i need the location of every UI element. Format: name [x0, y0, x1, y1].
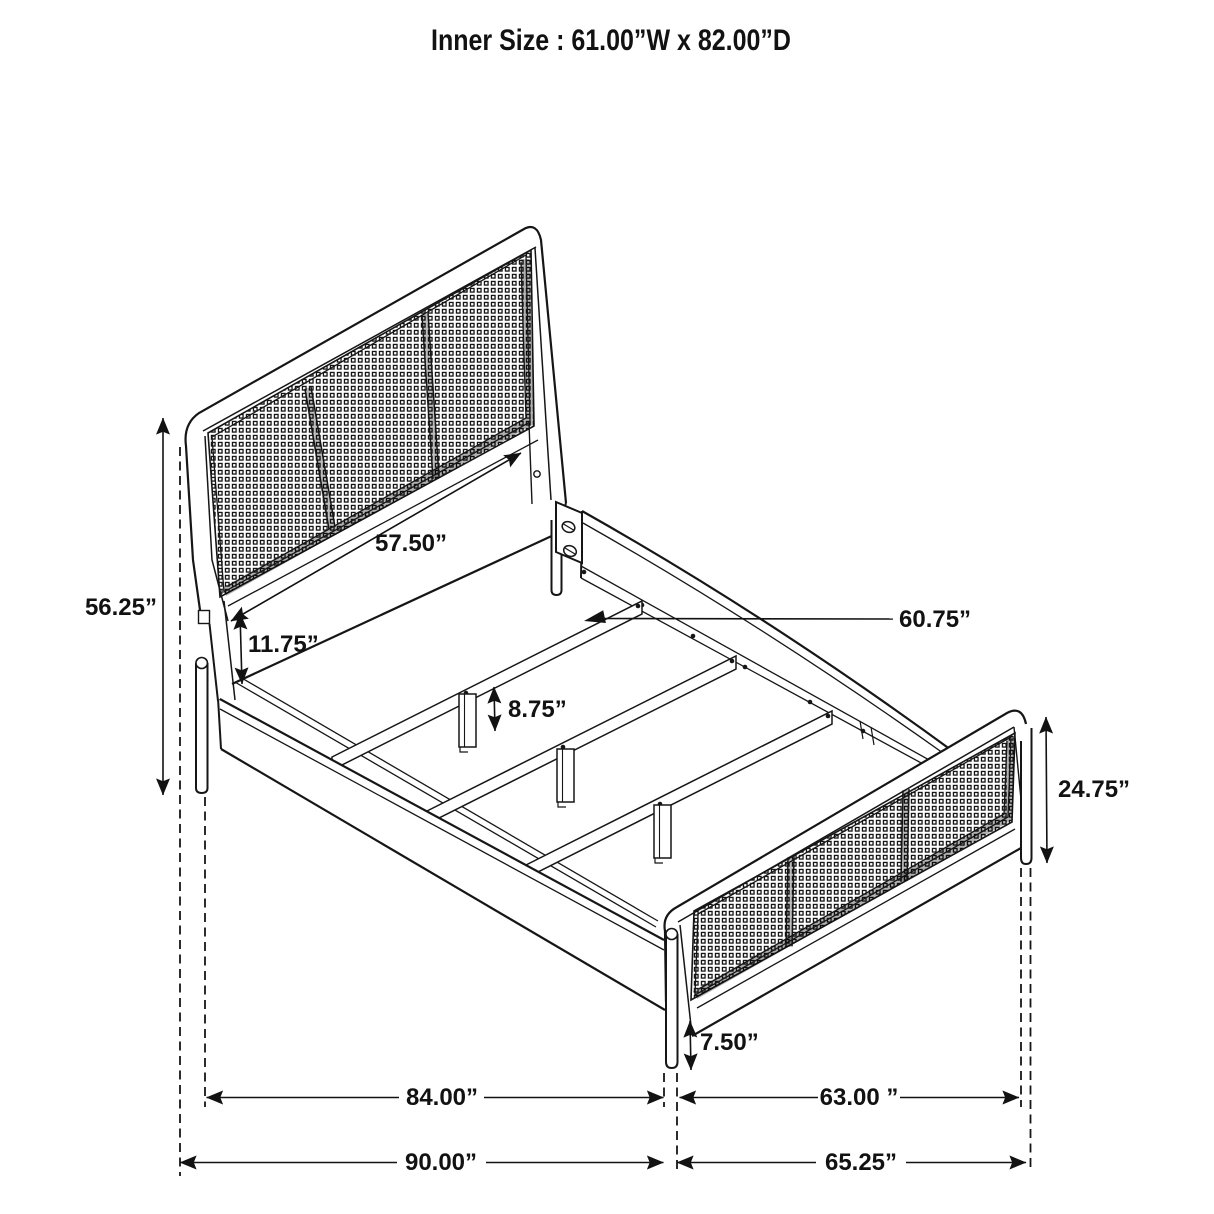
svg-text:90.00”: 90.00” — [405, 1149, 477, 1176]
svg-text:84.00”: 84.00” — [406, 1084, 478, 1111]
svg-text:56.25”: 56.25” — [85, 594, 157, 621]
svg-text:63.00 ”: 63.00 ” — [820, 1084, 899, 1111]
svg-text:Inner Size : 61.00”W x 82.00”D: Inner Size : 61.00”W x 82.00”D — [431, 24, 791, 57]
svg-text:57.50”: 57.50” — [375, 530, 447, 557]
svg-text:8.75”: 8.75” — [508, 696, 567, 723]
svg-text:24.75”: 24.75” — [1058, 776, 1130, 803]
svg-text:60.75”: 60.75” — [899, 606, 971, 633]
svg-text:11.75”: 11.75” — [248, 631, 319, 658]
svg-text:7.50”: 7.50” — [700, 1029, 759, 1056]
svg-text:65.25”: 65.25” — [825, 1149, 897, 1176]
